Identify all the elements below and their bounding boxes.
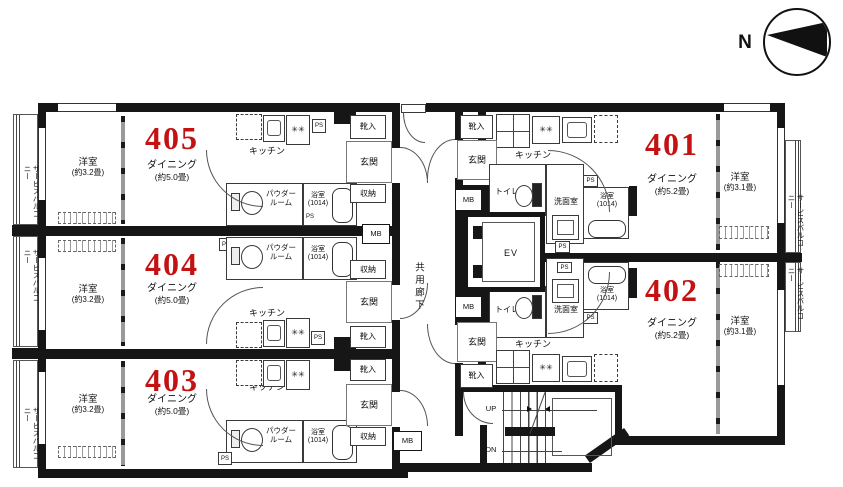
- bedroom-label-405: 洋室 (約3.2畳): [56, 157, 120, 178]
- wall: [487, 463, 592, 472]
- stair-landing: [552, 398, 612, 456]
- entrance-404: 玄関: [346, 281, 392, 323]
- room-name: ルーム: [259, 435, 303, 444]
- wall: [612, 436, 785, 445]
- closet-hatch: [719, 264, 769, 277]
- stove-burner-icon: ✳: [291, 329, 298, 337]
- elevator-door-icon: [473, 265, 482, 278]
- dining-label-405: ダイニング (約5.0畳): [134, 160, 210, 182]
- room-name: ダイニング: [134, 283, 210, 295]
- stove-icon: ✳✳: [286, 115, 310, 145]
- room-name: パウダー: [259, 189, 303, 198]
- closet-hatch: [719, 226, 769, 239]
- shoe-box-404: 靴入: [350, 326, 386, 348]
- kitchen-sink-icon: [263, 115, 285, 142]
- stove-icon: ✳✳: [532, 116, 560, 144]
- window: [777, 128, 785, 223]
- bedroom-label-401: 洋室 (約3.1畳): [710, 172, 770, 193]
- stove-burner-icon: ✳: [298, 126, 305, 134]
- balcony-rail: [16, 361, 20, 467]
- room-name: ダイニング: [634, 318, 710, 330]
- kitchen-counter: [594, 115, 618, 143]
- kitchen-counter-grid: [496, 114, 530, 148]
- balcony-left-405: サービスバルコニー: [13, 114, 38, 225]
- toilet-tank-icon: [532, 295, 542, 319]
- compass-circle: [763, 8, 831, 76]
- kitchen-counter: [594, 354, 618, 382]
- bath-label: 浴室 (1014): [304, 246, 332, 263]
- elevator: EV: [463, 212, 545, 292]
- shoe-box-401: 靴入: [460, 115, 493, 139]
- ps-box: PS: [218, 452, 232, 465]
- powder-room-label: パウダー ルーム: [259, 189, 303, 207]
- kitchen-sink-icon: [562, 356, 592, 382]
- stove-burner-icon: ✳: [291, 371, 298, 379]
- unit-number-401: 401: [639, 126, 705, 163]
- ps-label: PS: [303, 214, 317, 221]
- balcony-divider: [12, 225, 39, 236]
- entrance-405: 玄関: [346, 141, 392, 183]
- kitchen-counter-grid: [496, 350, 530, 384]
- stove-burner-icon: ✳: [546, 364, 553, 372]
- room-name: パウダー: [259, 243, 303, 252]
- stove-burner-icon: ✳: [546, 126, 553, 134]
- room-name: 洋室: [56, 394, 120, 405]
- room-size: (約5.0畳): [134, 295, 210, 305]
- compass-north-label: N: [733, 32, 757, 55]
- window: [724, 103, 770, 112]
- balcony-rail: [16, 237, 20, 346]
- entrance-402: 玄関: [457, 322, 497, 362]
- room-name: ルーム: [259, 252, 303, 261]
- stair-line-dn: [502, 451, 562, 452]
- elevator-label: EV: [482, 248, 540, 259]
- wall: [400, 463, 487, 472]
- wall: [392, 103, 400, 148]
- toilet-bowl-icon: [515, 297, 533, 319]
- dining-label-401: ダイニング (約5.2畳): [634, 174, 710, 196]
- kitchen-sink-icon: [263, 320, 285, 347]
- service-balcony-label: サービスバルコニー: [787, 194, 805, 252]
- door-arc: [427, 324, 455, 364]
- room-name: ダイニング: [634, 174, 710, 186]
- bedroom-label-402: 洋室 (約3.1畳): [710, 316, 770, 337]
- wall: [46, 349, 400, 359]
- dining-label-404: ダイニング (約5.0畳): [134, 283, 210, 305]
- door-arc: [206, 389, 263, 446]
- balcony-divider: [784, 253, 802, 262]
- window: [38, 258, 46, 330]
- stove-icon: ✳✳: [532, 354, 560, 382]
- stove-burner-icon: ✳: [539, 364, 546, 372]
- room-size: (約5.0畳): [134, 172, 210, 182]
- ps-box: PS: [312, 119, 326, 133]
- door-arc: [463, 392, 493, 424]
- storage-404: 収納: [350, 260, 386, 279]
- ps-box: PS: [555, 241, 570, 253]
- stove-burner-icon: ✳: [291, 126, 298, 134]
- room-name: パウダー: [259, 426, 303, 435]
- room-size: (約3.2畳): [56, 405, 120, 415]
- ps-box: PS: [311, 331, 325, 345]
- toilet-bowl-icon: [515, 185, 533, 207]
- room-name: 浴室: [304, 246, 332, 254]
- room-size: (約5.0畳): [134, 406, 210, 416]
- bathtub-icon: [588, 220, 626, 238]
- stove-burner-icon: ✳: [539, 126, 546, 134]
- room-size: (約5.2畳): [634, 186, 710, 196]
- partition: [121, 116, 125, 224]
- toilet-tank-icon: [532, 183, 542, 207]
- bath-label: 浴室 (1014): [304, 192, 332, 209]
- room-name: ダイニング: [134, 394, 210, 406]
- storage-403: 収納: [350, 427, 386, 446]
- room-name: ダイニング: [134, 160, 210, 172]
- room-name: 浴室: [304, 429, 332, 437]
- elevator-door-icon: [473, 226, 482, 239]
- unit-number-404: 404: [137, 246, 207, 283]
- stove-burner-icon: ✳: [298, 329, 305, 337]
- partition: [121, 238, 125, 346]
- mb-box: MB: [455, 189, 482, 211]
- door-arc: [400, 390, 428, 426]
- window: [38, 128, 46, 200]
- bathroom-404: 浴室 (1014): [303, 237, 357, 280]
- door-arc: [400, 147, 428, 183]
- room-name: 洋室: [56, 157, 120, 168]
- shoe-box-403: 靴入: [350, 359, 386, 381]
- stair-arrow-icon: [527, 406, 532, 412]
- powder-room-label: パウダー ルーム: [259, 426, 303, 444]
- compass: N: [733, 6, 838, 82]
- bedroom-label-404: 洋室 (約3.2畳): [56, 284, 120, 305]
- dining-label-403: ダイニング (約5.0畳): [134, 394, 210, 416]
- wall: [392, 183, 400, 285]
- wall: [38, 469, 408, 478]
- shoe-box-402: 靴入: [460, 364, 493, 388]
- window: [58, 103, 116, 112]
- wall: [629, 268, 637, 298]
- room-size: (約3.1畳): [710, 327, 770, 337]
- mb-box: MB: [393, 431, 422, 451]
- room-name: 洋室: [710, 172, 770, 183]
- corridor-label: 共用廊下: [411, 262, 425, 332]
- stairs-down-label: DN: [480, 445, 502, 454]
- dining-label-402: ダイニング (約5.2畳): [634, 318, 710, 340]
- room-size: (1014): [304, 200, 332, 208]
- kitchen-counter: [236, 114, 262, 140]
- window: [38, 372, 46, 444]
- door-arc: [206, 150, 263, 207]
- mb-box: MB: [455, 296, 482, 318]
- stove-icon: ✳✳: [286, 360, 310, 390]
- room-name: 洋室: [56, 284, 120, 295]
- door-arc: [403, 113, 425, 143]
- room-size: (約3.1畳): [710, 183, 770, 193]
- balcony-divider: [12, 348, 39, 359]
- mb-box: MB: [362, 224, 390, 244]
- room-size: (約5.2畳): [634, 330, 710, 340]
- balcony-right-402: サービスバルコニー: [785, 262, 801, 332]
- room-size: (約3.2畳): [56, 295, 120, 305]
- shoe-box-405: 靴入: [350, 115, 386, 139]
- door-arc: [548, 272, 610, 334]
- kitchen-sink-icon: [263, 360, 285, 387]
- powder-room-label: パウダー ルーム: [259, 243, 303, 261]
- toilet-tank-icon: [231, 247, 240, 265]
- bedroom-label-403: 洋室 (約3.2畳): [56, 394, 120, 415]
- kitchen-counter: [236, 360, 262, 386]
- floor-plan: サービスバルコニー サービスバルコニー サービスバルコニー サービスバルコニー …: [0, 0, 843, 487]
- door-arc: [548, 150, 610, 212]
- storage-405: 収納: [350, 184, 386, 203]
- stove-icon: ✳✳: [286, 318, 310, 348]
- toilet-room-402: トイレ: [489, 286, 546, 338]
- window: [777, 290, 785, 385]
- washer-icon: [552, 215, 579, 240]
- room-name: ルーム: [259, 198, 303, 207]
- compass-needle-icon: [767, 22, 827, 57]
- toilet-room-401: トイレ: [489, 164, 546, 216]
- corridor-entry-door: [401, 104, 426, 113]
- wall: [392, 320, 400, 392]
- room-size: (1014): [304, 254, 332, 262]
- room-name: 洋室: [710, 316, 770, 327]
- entrance-403: 玄関: [346, 384, 392, 426]
- balcony-rail: [16, 115, 20, 224]
- unit-number-402: 402: [639, 272, 705, 309]
- balcony-right-401: サービスバルコニー: [785, 140, 801, 253]
- closet-hatch: [58, 212, 116, 224]
- wall: [46, 226, 400, 236]
- bathroom-403: 浴室 (1014): [303, 420, 357, 463]
- stair-arrow-icon: [545, 406, 550, 412]
- bath-label: 浴室 (1014): [304, 429, 332, 446]
- service-balcony-label: サービスバルコニー: [787, 267, 805, 325]
- partition: [121, 361, 125, 466]
- door-arc: [427, 139, 455, 179]
- room-size: (約3.2畳): [56, 168, 120, 178]
- unit-number-405: 405: [137, 120, 207, 157]
- balcony-left-403: サービスバルコニー: [13, 360, 38, 468]
- room-name: 浴室: [304, 192, 332, 200]
- powder-room-404: パウダー ルーム: [226, 237, 303, 280]
- door-arc: [206, 287, 263, 344]
- kitchen-label-402: キッチン: [505, 339, 561, 350]
- kitchen-sink-icon: [562, 117, 592, 143]
- stove-burner-icon: ✳: [298, 371, 305, 379]
- partition: [716, 262, 720, 434]
- closet-hatch: [58, 240, 116, 252]
- balcony-left-404: サービスバルコニー: [13, 236, 38, 347]
- closet-hatch: [58, 446, 116, 458]
- room-size: (1014): [304, 437, 332, 445]
